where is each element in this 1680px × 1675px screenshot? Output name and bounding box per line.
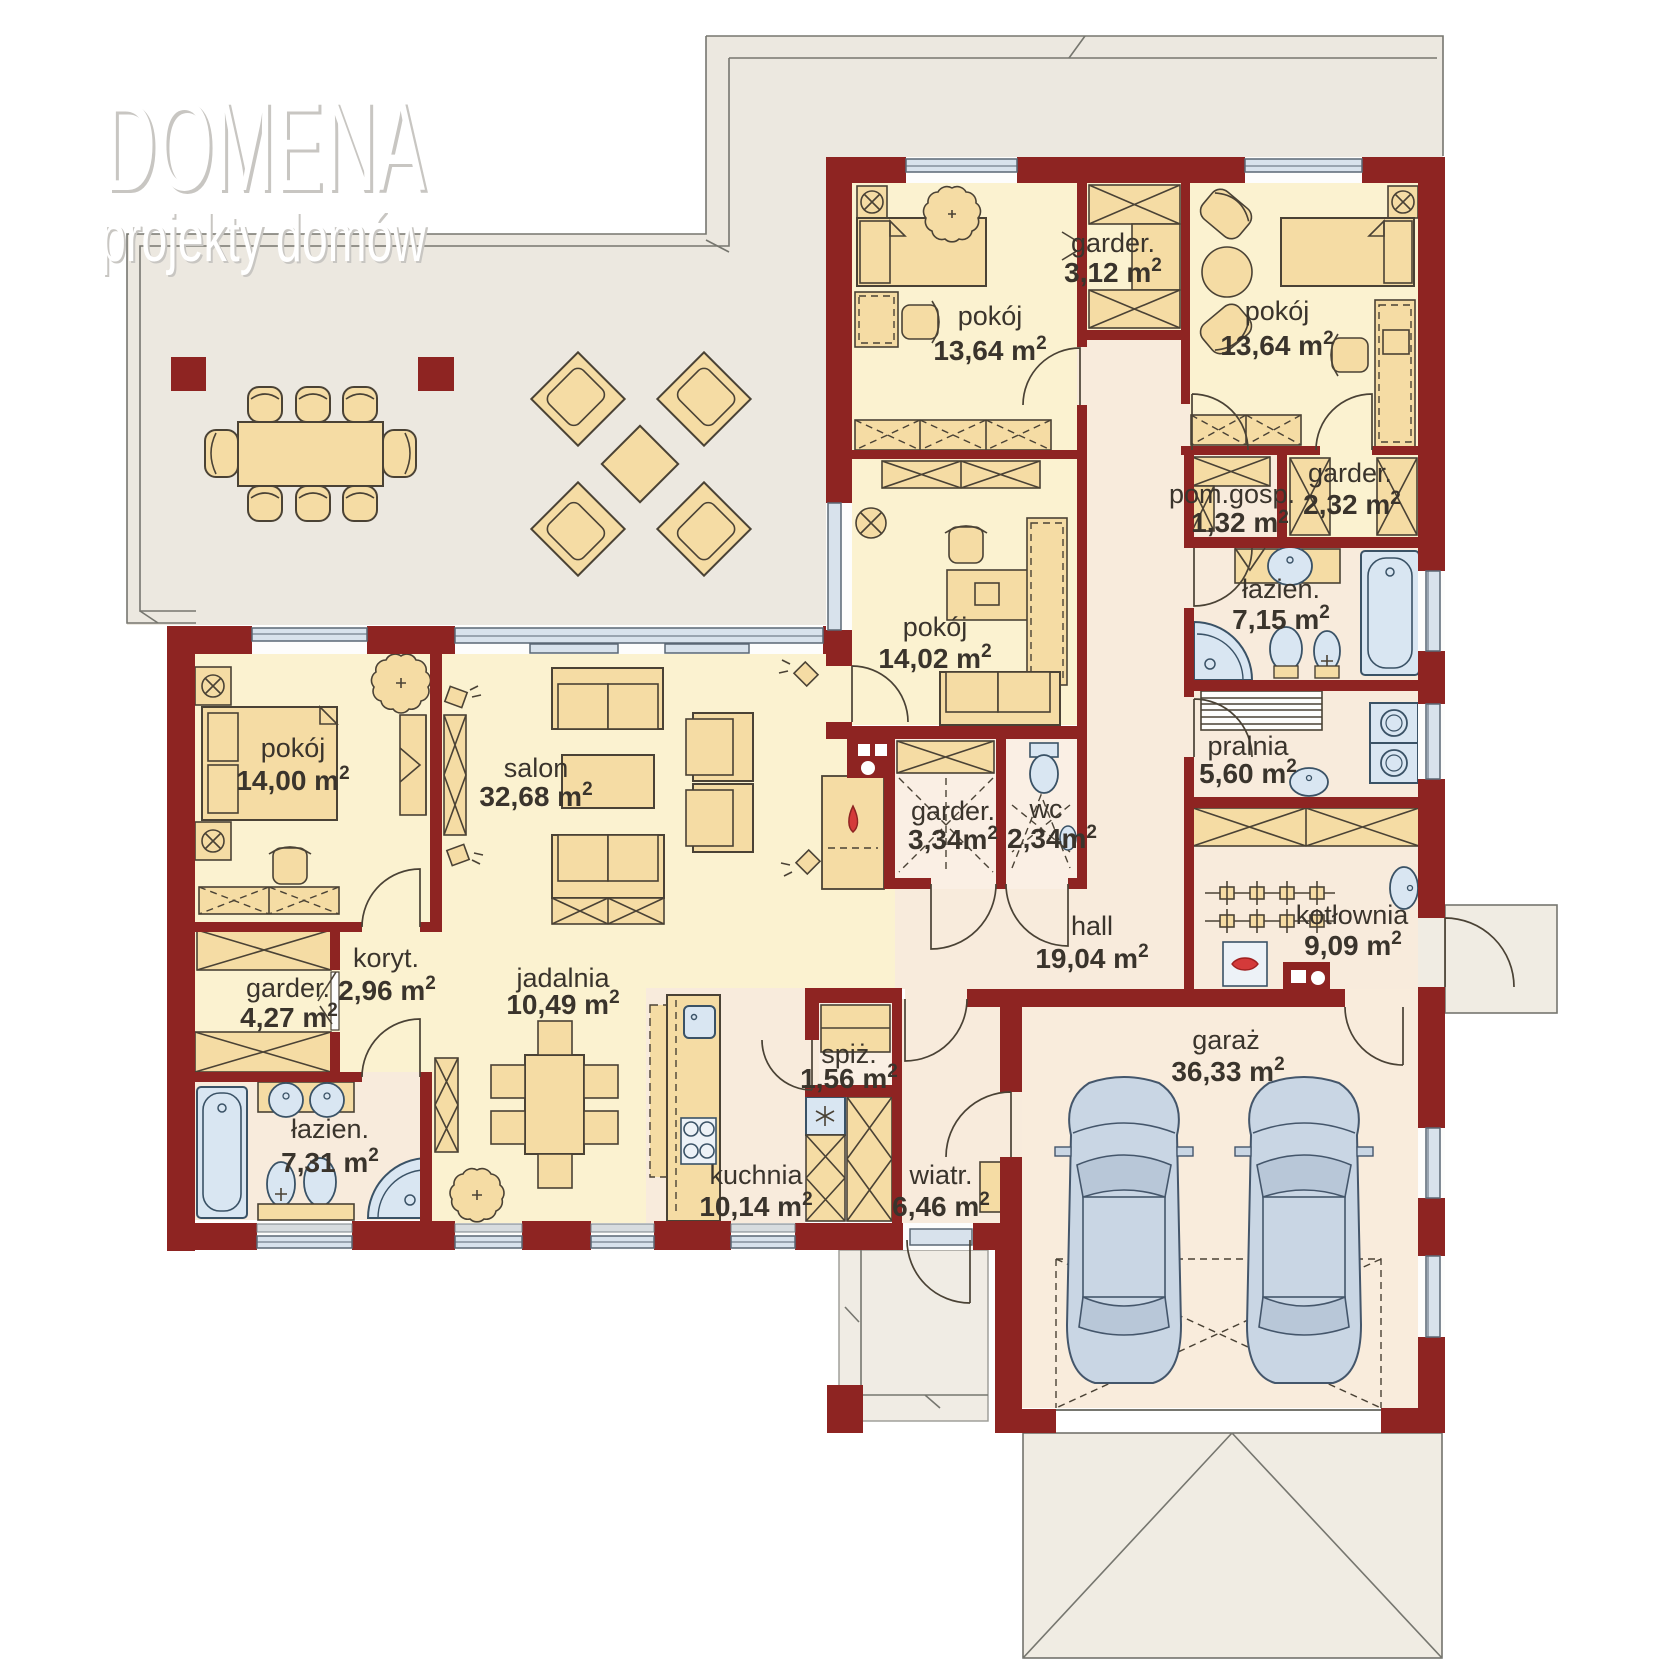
svg-text:14,00 m2: 14,00 m2 <box>236 763 349 796</box>
svg-text:2,34m2: 2,34m2 <box>1007 822 1097 854</box>
svg-text:kuchnia: kuchnia <box>709 1160 803 1190</box>
svg-text:6,46 m2: 6,46 m2 <box>892 1189 990 1222</box>
svg-text:pokój: pokój <box>903 612 968 642</box>
svg-text:10,14 m2: 10,14 m2 <box>699 1189 812 1222</box>
svg-text:wc: wc <box>1029 794 1063 824</box>
svg-text:pokój: pokój <box>1245 296 1310 326</box>
svg-text:salon: salon <box>504 753 569 783</box>
svg-text:pralnia: pralnia <box>1207 731 1289 761</box>
svg-text:7,15 m2: 7,15 m2 <box>1232 602 1330 635</box>
svg-text:projekty domów: projekty domów <box>100 200 427 276</box>
svg-text:1,56 m2: 1,56 m2 <box>800 1061 898 1094</box>
svg-text:4,27 m2: 4,27 m2 <box>240 1000 338 1033</box>
svg-text:7,31 m2: 7,31 m2 <box>281 1145 379 1178</box>
svg-text:koryt.: koryt. <box>353 943 419 973</box>
svg-text:łazien.: łazien. <box>291 1114 369 1144</box>
svg-text:pokój: pokój <box>958 301 1023 331</box>
svg-text:kotłownia: kotłownia <box>1296 900 1410 930</box>
svg-text:2,96 m2: 2,96 m2 <box>338 973 436 1006</box>
svg-text:9,09 m2: 9,09 m2 <box>1304 928 1402 961</box>
svg-text:pokój: pokój <box>261 733 326 763</box>
svg-text:garaż: garaż <box>1192 1025 1260 1055</box>
svg-text:wiatr.: wiatr. <box>908 1160 972 1190</box>
svg-text:3,12 m2: 3,12 m2 <box>1064 255 1162 288</box>
svg-text:pom.gosp.: pom.gosp. <box>1169 479 1295 509</box>
svg-text:5,60 m2: 5,60 m2 <box>1199 756 1297 789</box>
svg-text:garder.: garder. <box>246 973 330 1003</box>
svg-text:garder.: garder. <box>1308 458 1392 488</box>
svg-text:32,68 m2: 32,68 m2 <box>479 779 592 812</box>
svg-text:19,04 m2: 19,04 m2 <box>1035 941 1148 974</box>
svg-text:DOMENA: DOMENA <box>103 75 425 218</box>
svg-text:13,64 m2: 13,64 m2 <box>933 333 1046 366</box>
svg-text:hall: hall <box>1071 911 1113 941</box>
svg-text:garder.: garder. <box>911 796 995 826</box>
svg-text:2,32 m2: 2,32 m2 <box>1303 488 1401 520</box>
svg-text:10,49 m2: 10,49 m2 <box>506 987 619 1020</box>
svg-text:36,33 m2: 36,33 m2 <box>1171 1054 1284 1087</box>
svg-text:łazien.: łazien. <box>1242 574 1320 604</box>
svg-text:13,64 m2: 13,64 m2 <box>1220 328 1333 361</box>
svg-text:garder.: garder. <box>1071 228 1155 258</box>
svg-text:1,32 m2: 1,32 m2 <box>1191 507 1289 538</box>
svg-text:14,02 m2: 14,02 m2 <box>878 641 991 674</box>
svg-text:3,34m2: 3,34m2 <box>908 823 998 855</box>
